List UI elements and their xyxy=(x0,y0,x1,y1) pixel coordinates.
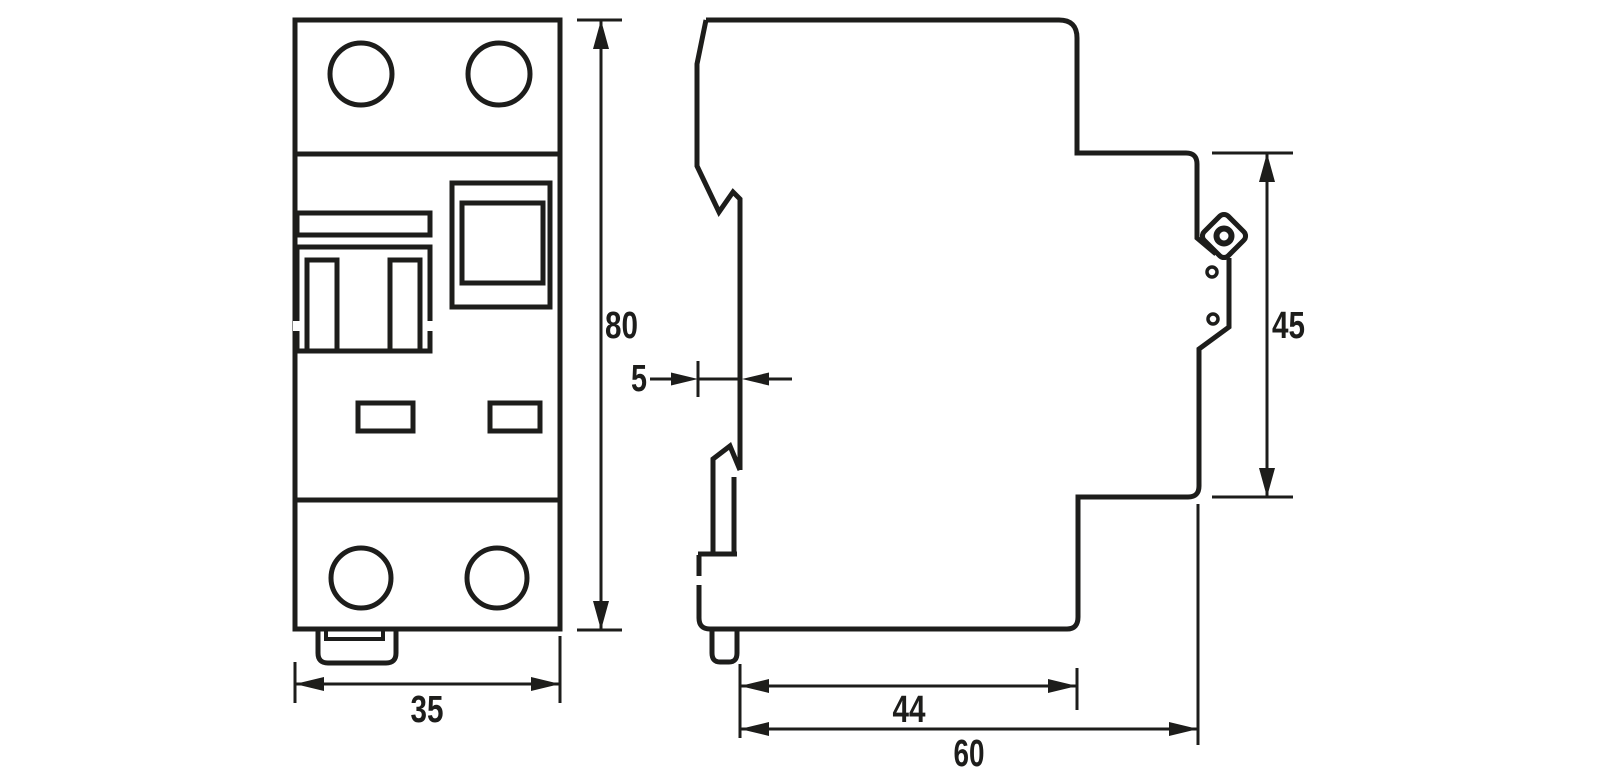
toggle-lever-diamond xyxy=(1200,212,1248,260)
dim-44-label: 44 xyxy=(893,689,926,731)
dimension-recess-5: 5 xyxy=(631,358,792,400)
terminal-circle-top-left xyxy=(330,43,392,105)
dim-80-label: 80 xyxy=(605,305,638,347)
dim-35-label: 35 xyxy=(411,689,444,731)
toggle-frame-notch-left xyxy=(293,321,304,331)
technical-drawing-page: 80 35 5 xyxy=(0,0,1600,768)
side-view xyxy=(694,20,1248,662)
dim-60-arrow-left xyxy=(740,722,769,736)
dimension-base-depth-44: 44 xyxy=(740,668,1077,731)
terminal-circle-top-right xyxy=(468,43,530,105)
dim-35-arrow-right xyxy=(531,677,560,691)
dim-80-arrow-down xyxy=(593,601,609,630)
dimension-front-height-45: 45 xyxy=(1212,153,1305,497)
dim-45-label: 45 xyxy=(1272,305,1305,347)
toggle-top-bar xyxy=(297,213,430,235)
terminal-circle-bottom-right xyxy=(467,548,527,608)
dim-44-arrow-left xyxy=(740,679,769,693)
dimension-drawing-canvas: 80 35 5 xyxy=(0,0,1600,768)
side-body-upper-outline xyxy=(706,20,1216,254)
dim-5-label: 5 xyxy=(631,358,647,400)
dim-44-arrow-right xyxy=(1048,679,1077,693)
dim-35-arrow-left xyxy=(295,677,324,691)
dimension-width-35: 35 xyxy=(295,636,560,731)
dim-5-arrow-right-pointing xyxy=(671,373,698,386)
dim-60-label: 60 xyxy=(954,733,985,768)
side-back-edge-rail-hook xyxy=(697,20,740,470)
toggle-lever-side xyxy=(1200,212,1248,260)
dim-45-arrow-down xyxy=(1259,468,1275,497)
side-foot-edge-notch xyxy=(694,576,704,585)
dimension-height-80: 80 xyxy=(577,20,638,630)
toggle-frame xyxy=(297,247,430,351)
marking-slot-right xyxy=(490,403,540,431)
toggle-lever-left xyxy=(307,260,337,351)
face-rivet-circle-lower xyxy=(1208,314,1218,324)
dim-45-arrow-up xyxy=(1259,153,1275,182)
toggle-switch-front xyxy=(293,213,435,351)
label-window-inner xyxy=(462,203,543,283)
dim-5-arrow-left-pointing xyxy=(742,373,769,386)
toggle-frame-notch-right xyxy=(424,321,435,331)
side-body-lower-outline xyxy=(699,258,1229,629)
dim-80-arrow-up xyxy=(593,20,609,49)
side-rail-clip-tab xyxy=(712,631,737,662)
dimensions: 80 35 5 xyxy=(295,20,1305,768)
toggle-lever-right xyxy=(390,260,420,351)
dim-60-arrow-right xyxy=(1169,722,1198,736)
toggle-lever-ring xyxy=(1217,229,1232,244)
label-window xyxy=(452,183,550,307)
marking-slot-left xyxy=(358,403,413,431)
dimension-total-depth-60: 60 xyxy=(740,504,1198,768)
front-view xyxy=(293,20,560,663)
face-rivet-circle-upper xyxy=(1207,267,1217,277)
terminal-circle-bottom-left xyxy=(331,548,391,608)
